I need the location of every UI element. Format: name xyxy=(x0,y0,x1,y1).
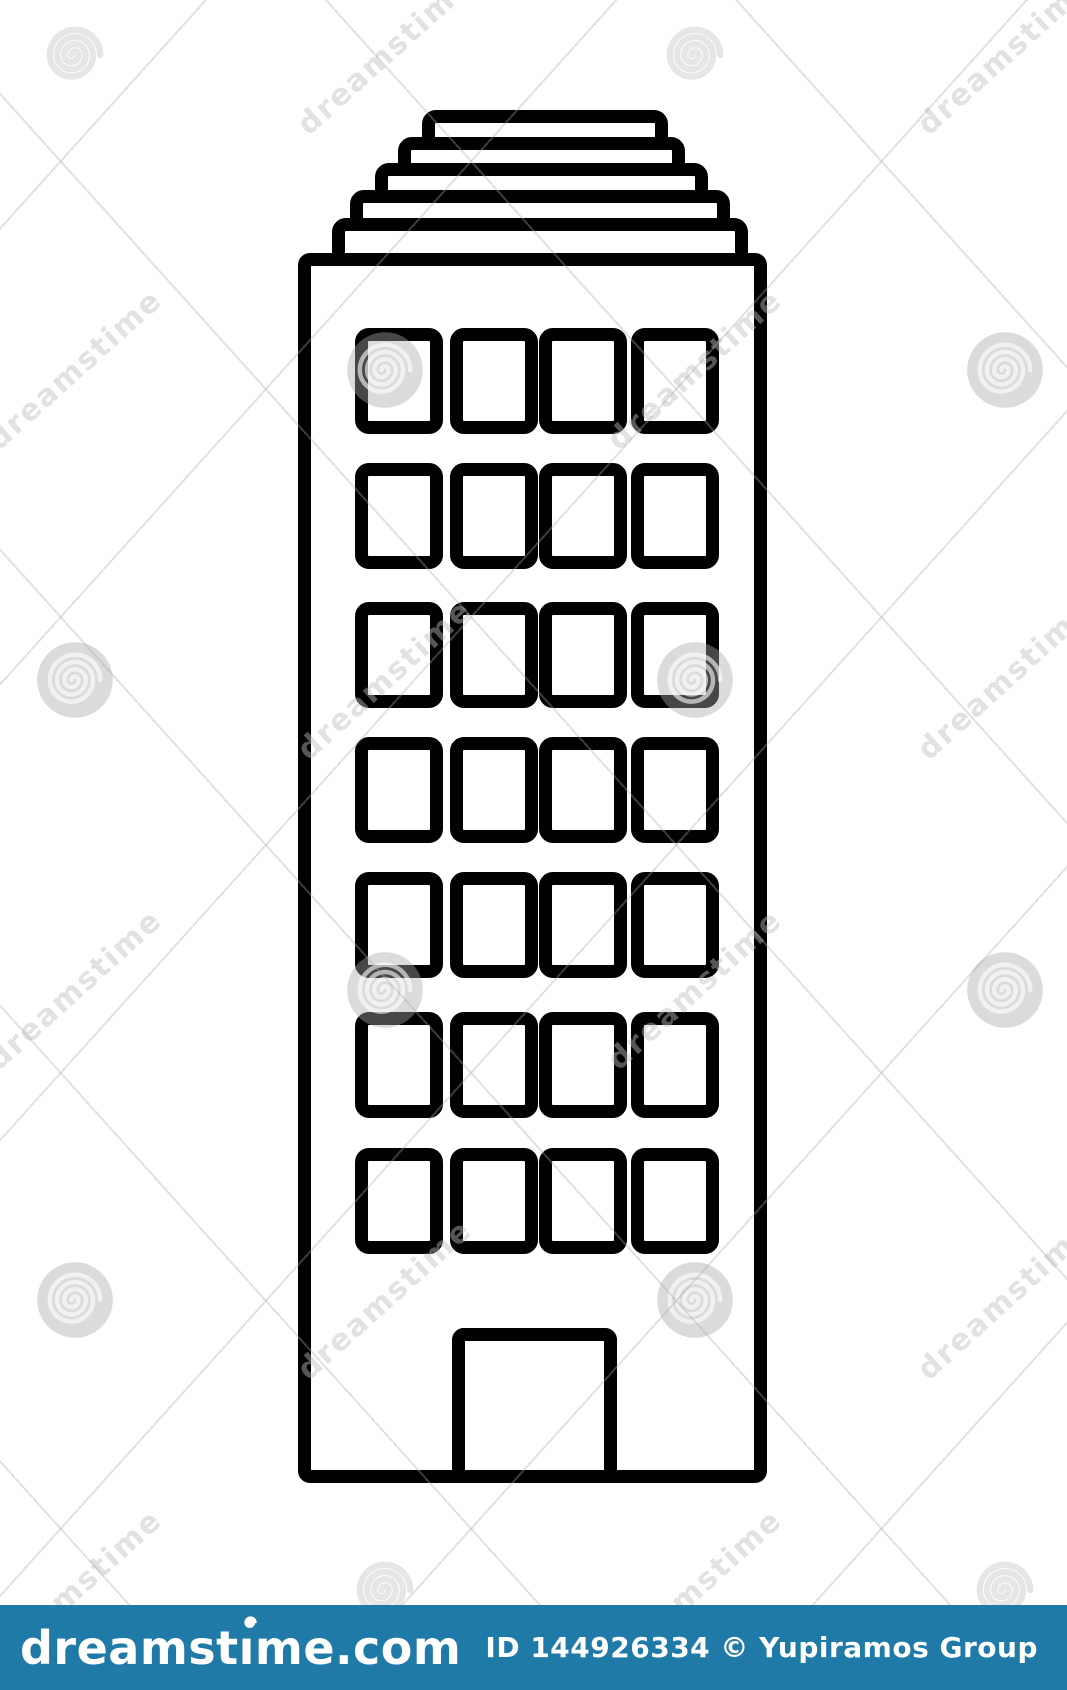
building-window xyxy=(631,1148,719,1254)
building-window xyxy=(450,1012,538,1118)
building-window xyxy=(631,328,719,434)
building-window xyxy=(631,463,719,569)
building-window xyxy=(539,737,627,843)
building-window xyxy=(355,328,443,434)
building-window xyxy=(355,872,443,978)
dreamstime-logo: dreamstıme.com xyxy=(20,1625,461,1671)
building-window xyxy=(631,1012,719,1118)
building-window xyxy=(539,1148,627,1254)
building-window xyxy=(450,328,538,434)
building-window xyxy=(539,872,627,978)
building-window xyxy=(450,737,538,843)
building-window xyxy=(539,602,627,708)
footer-bar: dreamstıme.com ID 144926334 © Yupiramos … xyxy=(0,1605,1067,1690)
building-window xyxy=(539,1012,627,1118)
building-window xyxy=(539,328,627,434)
building-window xyxy=(631,602,719,708)
logo-spiral-icon xyxy=(241,1613,260,1632)
building-window xyxy=(450,872,538,978)
building-window xyxy=(631,737,719,843)
building-window xyxy=(631,872,719,978)
building-window xyxy=(539,463,627,569)
building-window xyxy=(355,1148,443,1254)
building-icon xyxy=(0,0,1067,1690)
stock-image-preview: dreamstimedreamstimedreamstimedreamstime… xyxy=(0,0,1067,1690)
building-window xyxy=(450,1148,538,1254)
building-body xyxy=(298,253,767,1483)
building-window xyxy=(355,602,443,708)
building-window xyxy=(355,463,443,569)
building-window xyxy=(450,463,538,569)
building-window xyxy=(355,1012,443,1118)
image-credit: ID 144926334 © Yupiramos Group xyxy=(485,1631,1038,1664)
building-door xyxy=(452,1328,617,1470)
building-window xyxy=(450,602,538,708)
building-window xyxy=(355,737,443,843)
